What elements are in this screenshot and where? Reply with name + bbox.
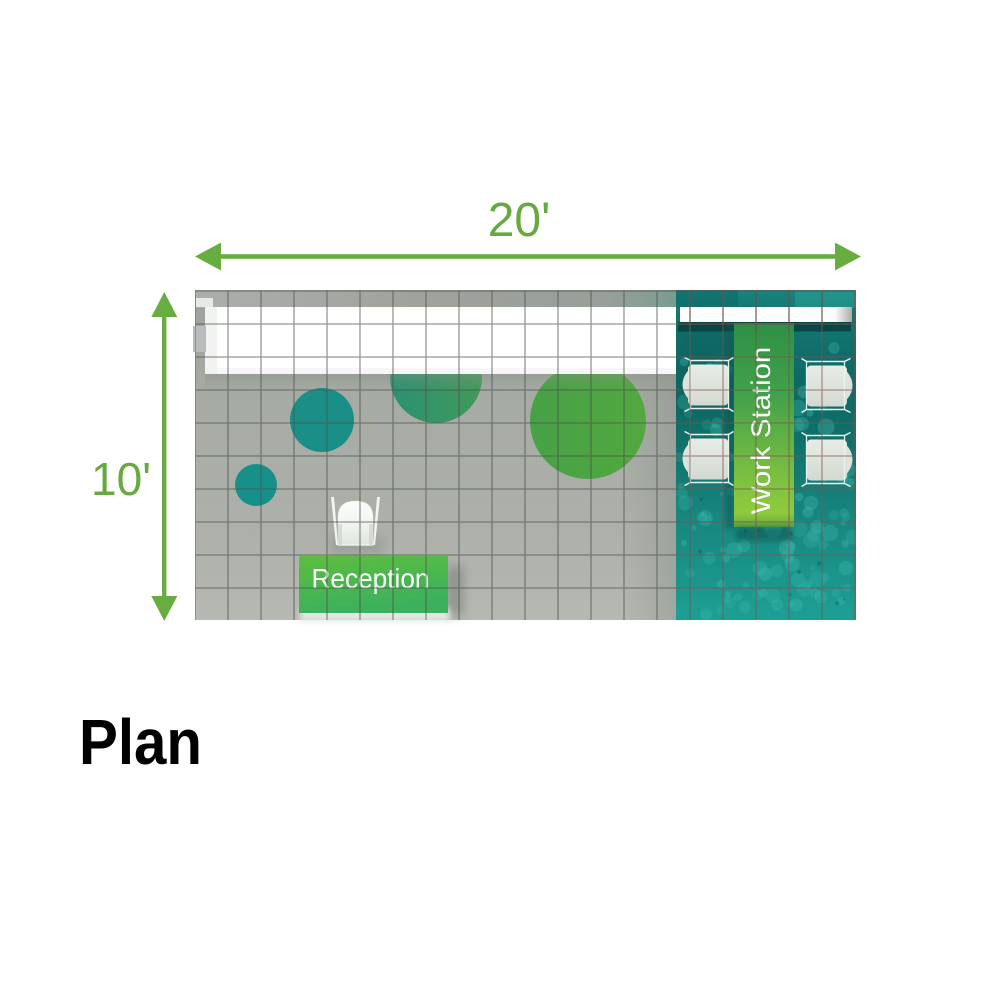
svg-text:Reception: Reception [312,563,430,594]
svg-text:Plan: Plan [79,706,202,778]
svg-text:10': 10' [91,453,151,505]
svg-text:20': 20' [488,194,551,247]
